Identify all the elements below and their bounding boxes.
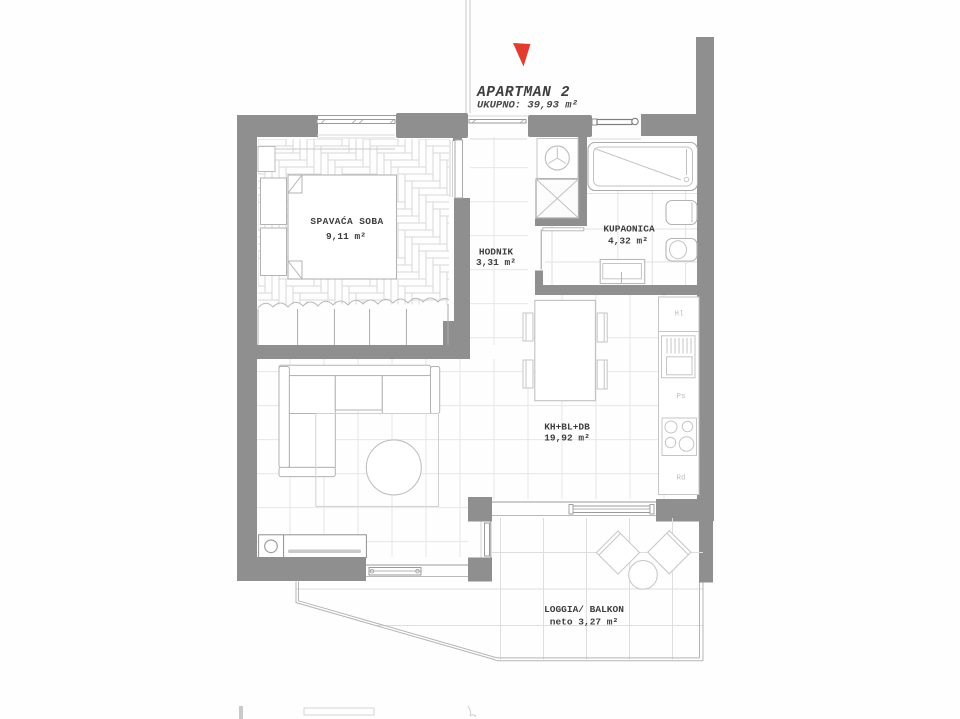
svg-text:Rd: Rd bbox=[676, 475, 685, 483]
svg-text:19,92 m²: 19,92 m² bbox=[544, 433, 590, 444]
svg-text:neto 3,27 m²: neto 3,27 m² bbox=[550, 617, 618, 628]
svg-text:4,32 m²: 4,32 m² bbox=[608, 236, 648, 247]
svg-text:LOGGIA/ BALKON: LOGGIA/ BALKON bbox=[544, 604, 624, 615]
svg-text:UKUPNO: 39,93 m²: UKUPNO: 39,93 m² bbox=[477, 100, 578, 112]
svg-text:Ps: Ps bbox=[676, 393, 685, 401]
svg-text:HODNIK: HODNIK bbox=[479, 247, 514, 258]
svg-text:9,11 m²: 9,11 m² bbox=[326, 231, 366, 242]
svg-text:Hl: Hl bbox=[674, 311, 684, 319]
svg-text:SPAVAĆA SOBA: SPAVAĆA SOBA bbox=[310, 216, 383, 227]
svg-text:3,31 m²: 3,31 m² bbox=[476, 257, 516, 268]
svg-text:KH+BL+DB: KH+BL+DB bbox=[544, 422, 590, 433]
svg-text:KUPAONICA: KUPAONICA bbox=[603, 224, 655, 235]
